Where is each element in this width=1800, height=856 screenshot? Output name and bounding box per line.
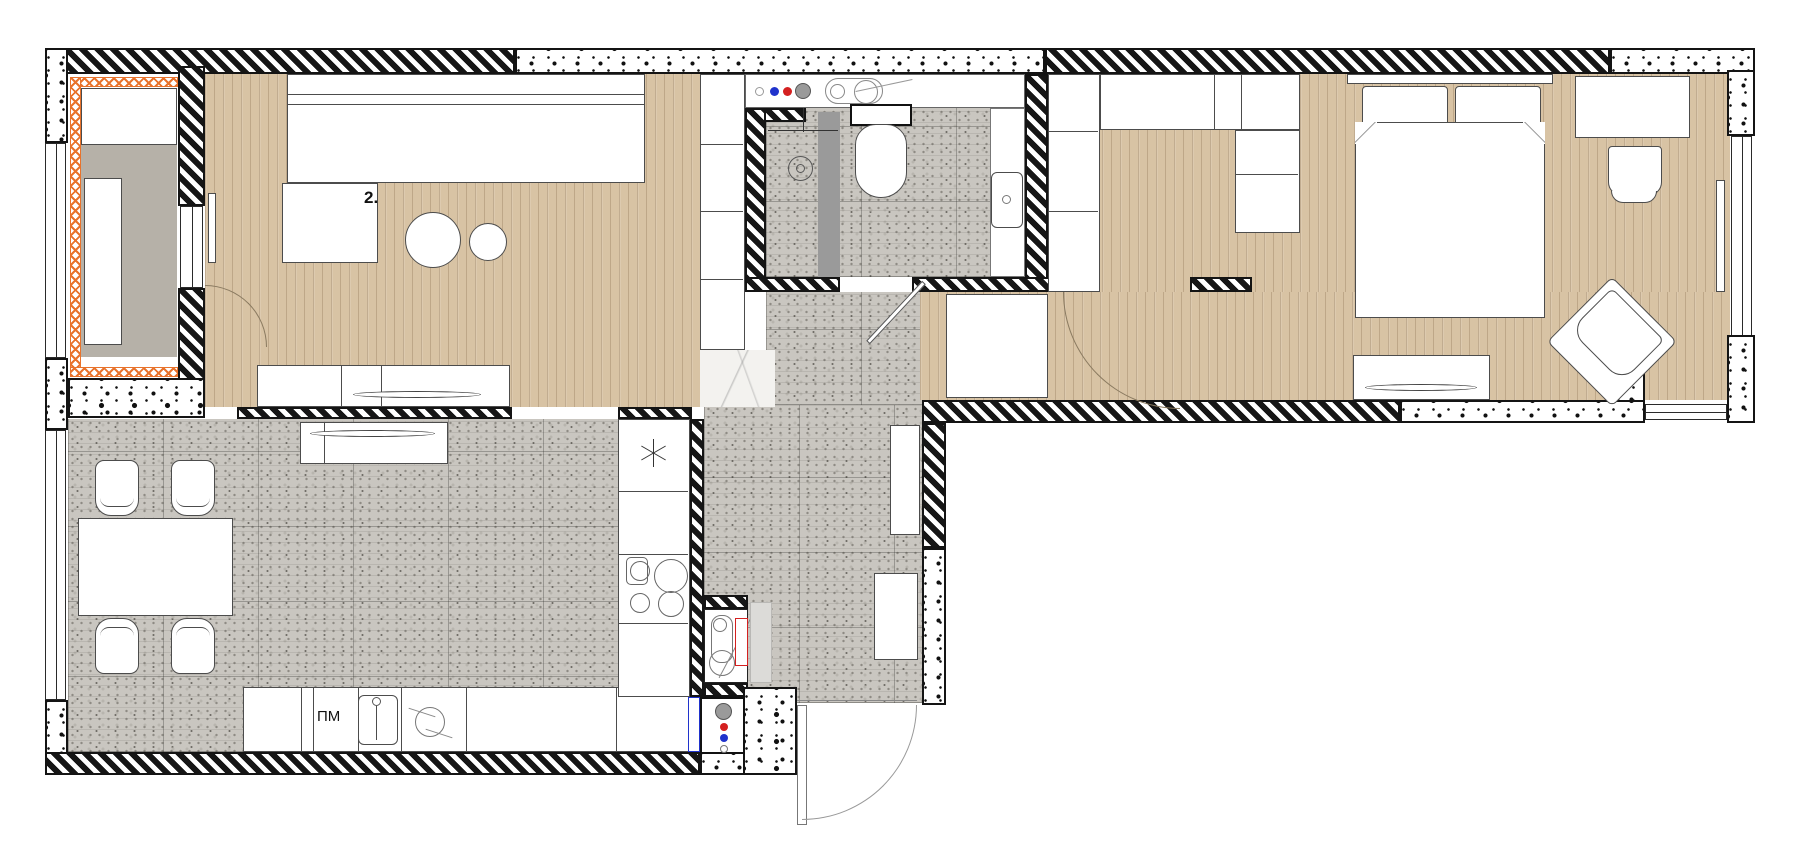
wall-bottom: [45, 752, 700, 775]
wall-right-lower: [1727, 335, 1755, 423]
shower-drain-inner: [796, 164, 805, 173]
pipe-blue: [720, 734, 728, 742]
bath-sink-drain: [1002, 195, 1011, 204]
valve-red: [783, 87, 792, 96]
valve-gray: [795, 83, 811, 99]
bedroom-window: [1731, 136, 1752, 340]
dishwasher-label: ПМ: [317, 708, 340, 725]
dressing-cabinet-top: [1100, 74, 1300, 130]
meter-bracket: [688, 697, 700, 752]
corner-window: [1645, 404, 1727, 420]
bathroom-west-wall: [745, 108, 766, 292]
niche-stub-bottom: [704, 683, 748, 697]
dressing-south-stub: [1190, 277, 1252, 292]
floor-plan: 2. ПМ: [0, 0, 1800, 856]
pipe-gray: [715, 703, 732, 720]
hall-cabinet-lower: [874, 573, 918, 660]
balcony-bottom-band: [68, 378, 205, 418]
bedroom-tv-stand: [1353, 355, 1490, 400]
wall-living-kitchen-stub: [618, 407, 692, 419]
toilet-bowl: [855, 124, 907, 198]
wall-right-upper: [1727, 70, 1755, 136]
kitchen-right-wall: [690, 419, 704, 697]
wall-living-kitchen: [237, 407, 512, 419]
balcony-wall-upper: [178, 66, 205, 206]
hob: [620, 553, 688, 621]
towel-radiator: [735, 618, 748, 666]
bed-headboard: [1347, 74, 1553, 84]
nook-wardrobe: [946, 294, 1048, 398]
balcony-door: [180, 206, 203, 288]
water-heater: [825, 78, 883, 104]
living-tv: [353, 391, 481, 398]
living-storage-column: [700, 74, 745, 350]
hall-cabinet-upper: [890, 425, 920, 535]
sink-faucet: [372, 697, 381, 706]
sofa: [287, 74, 645, 183]
bathroom-south-wall-left: [745, 277, 840, 292]
bedroom-desk: [1575, 76, 1690, 138]
coffee-table-large: [405, 212, 461, 268]
marble-threshold: [700, 350, 775, 407]
bedroom-radiator: [1716, 180, 1725, 292]
entry-wall-block-2: [700, 752, 745, 775]
bathroom-south-wall-right: [912, 277, 1065, 292]
dining-chair-1: [95, 460, 139, 516]
dining-table: [78, 518, 233, 616]
shower-glass: [818, 112, 840, 277]
balcony-wall-lower: [178, 288, 205, 380]
bathroom-east-wall: [1025, 74, 1048, 292]
kitchen-tv-unit: [300, 422, 448, 464]
bathroom-door-leaf: [855, 282, 919, 346]
wall-top-right: [1045, 48, 1610, 74]
kitchen-window: [45, 430, 66, 700]
niche-stub-top: [704, 595, 748, 609]
wall-top-left: [45, 48, 515, 74]
hallway-east-wall-concrete: [922, 548, 946, 705]
insulation-top: [70, 77, 178, 87]
wall-top-middle: [515, 48, 1045, 74]
bathroom-north-stub: [764, 108, 806, 122]
dining-chair-2: [171, 460, 215, 516]
balcony-bench: [81, 88, 177, 145]
utility-shaft: [700, 697, 745, 754]
bed: [1355, 122, 1545, 318]
insulation-left: [70, 77, 81, 377]
fridge-snowflake-icon: [639, 439, 667, 467]
entry-wall-block: [743, 687, 797, 775]
kitchen-tv: [310, 430, 435, 437]
valve-white: [755, 87, 764, 96]
sink-faucet-stem: [376, 706, 377, 740]
entry-door-arc: [802, 705, 917, 820]
living-radiator: [208, 193, 216, 263]
toilet-cistern: [850, 104, 912, 126]
dining-chair-4: [171, 618, 215, 674]
valve-blue: [770, 87, 779, 96]
pipe-white: [720, 745, 728, 753]
bedroom-tv: [1365, 384, 1477, 391]
dressing-closet-right: [1235, 130, 1300, 233]
hall-mirror-panel: [750, 602, 772, 683]
living-sideboard: [257, 365, 510, 407]
insulation-bottom: [70, 367, 178, 377]
pipe-red: [720, 723, 728, 731]
entry-threshold: [797, 700, 917, 701]
coffee-table-small: [469, 223, 507, 261]
dining-chair-3: [95, 618, 139, 674]
balcony-table: [84, 178, 122, 345]
balcony-glazing: [45, 143, 66, 358]
desk-chair: [1608, 146, 1662, 196]
hallway-east-wall: [922, 423, 946, 548]
wall-left-middle: [45, 358, 68, 430]
wall-left-top: [45, 48, 68, 143]
shower-bar: [768, 130, 838, 131]
room-number-label: 2.: [364, 188, 378, 208]
shower-pipe: [803, 108, 804, 132]
dressing-closet-left: [1048, 74, 1100, 292]
